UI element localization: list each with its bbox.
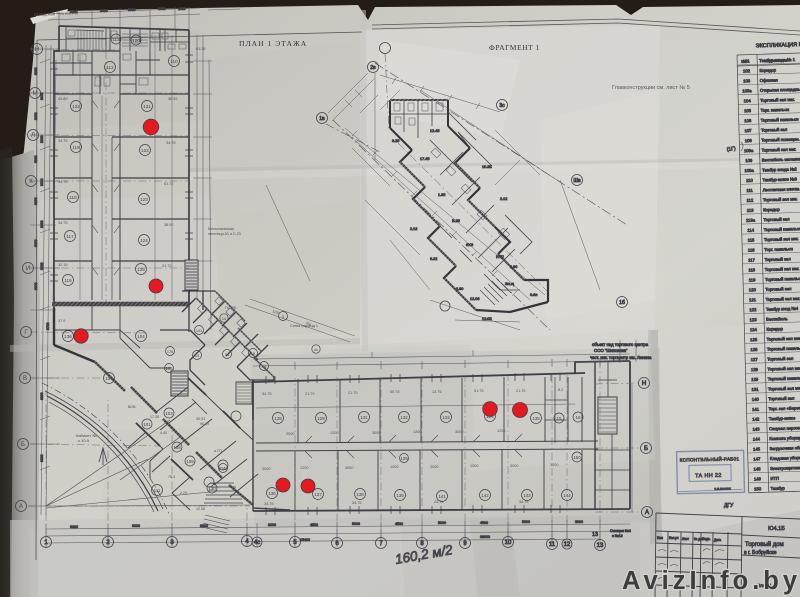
svg-text:18: 18 bbox=[251, 352, 255, 356]
svg-text:6000: 6000 bbox=[40, 392, 44, 400]
svg-text:34.75: 34.75 bbox=[58, 180, 68, 184]
svg-text:131: 131 bbox=[751, 387, 759, 392]
svg-text:ПС77Б: ПС77Б bbox=[225, 306, 237, 310]
svg-text:129: 129 bbox=[400, 456, 408, 461]
svg-text:Б: Б bbox=[21, 442, 25, 448]
svg-text:Ю4.1Б: Ю4.1Б bbox=[768, 526, 785, 532]
svg-text:103: 103 bbox=[743, 78, 751, 83]
svg-text:123: 123 bbox=[750, 317, 758, 322]
svg-text:6000: 6000 bbox=[34, 155, 38, 163]
svg-text:ИТП: ИТП bbox=[770, 476, 779, 481]
svg-text:6000: 6000 bbox=[34, 282, 38, 290]
svg-text:5000: 5000 bbox=[438, 521, 446, 525]
svg-text:13.75: 13.75 bbox=[432, 390, 442, 394]
svg-text:106: 106 bbox=[744, 118, 752, 123]
svg-text:ТА НН 22: ТА НН 22 bbox=[695, 473, 722, 480]
svg-text:147: 147 bbox=[753, 456, 761, 461]
svg-text:ООО "Шиповник": ООО "Шиповник" bbox=[594, 348, 628, 353]
svg-text:116: 116 bbox=[748, 247, 756, 252]
svg-text:21.79: 21.79 bbox=[305, 392, 315, 396]
svg-text:107: 107 bbox=[745, 128, 753, 133]
svg-text:38.52: 38.52 bbox=[168, 97, 178, 101]
svg-text:1400: 1400 bbox=[178, 7, 186, 11]
svg-text:К: К bbox=[29, 179, 33, 185]
svg-text:Дата: Дата bbox=[714, 538, 721, 542]
svg-text:34.75: 34.75 bbox=[352, 501, 362, 505]
svg-text:90.19: 90.19 bbox=[200, 422, 209, 426]
svg-text:3000: 3000 bbox=[40, 220, 44, 228]
svg-text:Торговый зал маг.: Торговый зал маг. bbox=[767, 366, 800, 372]
svg-text:1б: 1б bbox=[619, 300, 625, 306]
svg-text:Главконструкции см. лист № 5: Главконструкции см. лист № 5 bbox=[612, 85, 690, 91]
svg-text:6.22: 6.22 bbox=[430, 257, 437, 261]
svg-text:109: 109 bbox=[745, 158, 753, 163]
svg-text:Н: Н bbox=[35, 47, 39, 53]
svg-text:104: 104 bbox=[137, 334, 145, 339]
svg-text:Коридор: Коридор bbox=[759, 67, 776, 73]
svg-text:14: 14 bbox=[225, 353, 229, 357]
svg-text:Комната уборщицы: Комната уборщицы bbox=[769, 435, 800, 441]
svg-text:112: 112 bbox=[106, 65, 114, 70]
svg-text:AvizInfo.by: AvizInfo.by bbox=[622, 567, 800, 595]
svg-text:141: 141 bbox=[438, 494, 446, 499]
svg-text:103: 103 bbox=[165, 411, 173, 416]
svg-text:125: 125 bbox=[750, 337, 758, 342]
svg-text:3000: 3000 bbox=[430, 465, 438, 469]
svg-text:123: 123 bbox=[140, 197, 148, 202]
svg-text:ВОВ: ВОВ bbox=[128, 405, 136, 409]
svg-text:Тамбур вход №4: Тамбур вход №4 bbox=[766, 306, 799, 312]
svg-text:122: 122 bbox=[749, 307, 757, 312]
svg-text:8600: 8600 bbox=[200, 524, 208, 528]
svg-text:а ГП: а ГП bbox=[214, 449, 222, 453]
svg-text:116: 116 bbox=[64, 278, 72, 283]
svg-text:1200: 1200 bbox=[300, 466, 308, 470]
svg-text:137: 137 bbox=[314, 492, 322, 497]
svg-text:ФРАГМЕНТ 1: ФРАГМЕНТ 1 bbox=[489, 43, 540, 52]
svg-text:34.75: 34.75 bbox=[519, 500, 529, 504]
svg-text:121: 121 bbox=[143, 104, 151, 109]
svg-text:129: 129 bbox=[317, 416, 325, 421]
svg-text:п.и.костюк: п.и.костюк bbox=[714, 487, 731, 491]
svg-text:Подп.: Подп. bbox=[702, 537, 711, 541]
svg-text:124: 124 bbox=[140, 238, 148, 243]
svg-text:113: 113 bbox=[747, 208, 755, 213]
svg-text:110: 110 bbox=[746, 178, 754, 183]
svg-text:с 10-9: с 10-9 bbox=[78, 438, 90, 443]
svg-text:138: 138 bbox=[356, 492, 364, 497]
svg-text:Н: Н bbox=[642, 381, 646, 387]
svg-text:128: 128 bbox=[274, 416, 282, 421]
svg-text:128: 128 bbox=[751, 367, 759, 372]
svg-text:14: 14 bbox=[195, 354, 199, 358]
svg-text:119: 119 bbox=[72, 145, 80, 150]
svg-text:9730: 9730 bbox=[46, 322, 50, 330]
svg-text:6300: 6300 bbox=[70, 525, 78, 529]
svg-text:111: 111 bbox=[154, 488, 161, 493]
svg-text:103а: 103а bbox=[742, 88, 752, 93]
svg-text:4с: 4с bbox=[314, 348, 318, 352]
svg-text:6000: 6000 bbox=[34, 112, 38, 120]
svg-text:4500: 4500 bbox=[480, 521, 488, 525]
svg-text:4.40: 4.40 bbox=[160, 431, 167, 435]
svg-text:Офисная: Офисная bbox=[760, 77, 778, 83]
svg-text:143: 143 bbox=[523, 493, 531, 498]
svg-text:12: 12 bbox=[564, 542, 571, 548]
svg-text:4500: 4500 bbox=[310, 523, 318, 527]
svg-text:Коридор: Коридор bbox=[766, 326, 783, 332]
svg-text:3000: 3000 bbox=[40, 92, 44, 100]
svg-text:Торговый зал: Торговый зал bbox=[761, 127, 788, 133]
svg-text:34.75: 34.75 bbox=[262, 392, 272, 396]
svg-text:135: 135 bbox=[532, 416, 540, 421]
svg-text:144: 144 bbox=[563, 493, 571, 498]
svg-text:Торговый дом: Торговый дом bbox=[745, 541, 784, 548]
svg-text:8.2: 8.2 bbox=[558, 388, 563, 392]
svg-text:3.25: 3.25 bbox=[392, 139, 399, 143]
svg-text:Торговый зал: Торговый зал bbox=[768, 396, 795, 402]
svg-text:126: 126 bbox=[750, 347, 758, 352]
svg-text:50.75: 50.75 bbox=[390, 390, 400, 394]
svg-text:1.95: 1.95 bbox=[438, 193, 445, 197]
svg-text:37.9: 37.9 bbox=[58, 319, 65, 323]
svg-text:24.75: 24.75 bbox=[434, 500, 444, 504]
svg-text:21.79: 21.79 bbox=[348, 391, 358, 395]
svg-text:51.72: 51.72 bbox=[162, 264, 172, 268]
svg-text:113: 113 bbox=[112, 37, 120, 42]
svg-text:Торговый зал: Торговый зал bbox=[763, 216, 790, 222]
svg-text:Торг. зал «Березка»: Торг. зал «Березка» bbox=[768, 405, 800, 411]
svg-text:21.75: 21.75 bbox=[516, 389, 526, 393]
svg-text:Торговый павильон: Торговый павильон bbox=[765, 276, 800, 282]
svg-text:(1Г): (1Г) bbox=[726, 146, 736, 153]
svg-text:Электрощитовая: Электрощитовая bbox=[770, 465, 800, 471]
svg-text:38.92: 38.92 bbox=[164, 223, 174, 227]
svg-text:4500: 4500 bbox=[395, 522, 403, 526]
svg-text:М: М bbox=[33, 91, 38, 97]
svg-text:132: 132 bbox=[400, 415, 408, 420]
svg-text:45.80: 45.80 bbox=[58, 97, 68, 101]
svg-text:Торговый павильон: Торговый павильон bbox=[768, 375, 800, 381]
svg-text:2в: 2в bbox=[370, 65, 376, 71]
svg-text:112: 112 bbox=[747, 198, 755, 203]
svg-text:3000: 3000 bbox=[510, 464, 518, 468]
svg-text:Торговый павильон: Торговый павильон bbox=[767, 345, 800, 351]
svg-text:101: 101 bbox=[743, 58, 751, 63]
svg-text:122: 122 bbox=[141, 148, 149, 153]
svg-text:Тамбур: Тамбур bbox=[771, 485, 786, 490]
svg-text:3000: 3000 bbox=[262, 467, 270, 471]
svg-text:129: 129 bbox=[751, 377, 759, 382]
svg-text:6У.9: 6У.9 bbox=[466, 243, 473, 247]
svg-text:1200: 1200 bbox=[470, 464, 478, 468]
svg-text:Смещен №3: Смещен №3 bbox=[610, 529, 631, 533]
svg-text:101: 101 bbox=[143, 422, 151, 427]
svg-text:140: 140 bbox=[752, 397, 760, 402]
svg-text:6000: 6000 bbox=[34, 239, 38, 247]
svg-text:в г. Бобруйске: в г. Бобруйске bbox=[744, 549, 777, 556]
svg-text:3000: 3000 bbox=[40, 178, 44, 186]
svg-text:61.28: 61.28 bbox=[196, 47, 206, 51]
svg-text:Торг. павильон: Торг. павильон bbox=[764, 246, 793, 252]
svg-text:16: 16 bbox=[576, 415, 581, 420]
svg-text:109а: 109а bbox=[744, 168, 754, 173]
svg-text:1200: 1200 bbox=[390, 465, 398, 469]
svg-text:12.0Б: 12.0Б bbox=[482, 317, 492, 321]
svg-text:15400: 15400 bbox=[300, 538, 310, 542]
svg-text:108а: 108а bbox=[744, 148, 754, 153]
svg-text:Торговый зал маг.: Торговый зал маг. bbox=[765, 266, 800, 272]
svg-text:6000: 6000 bbox=[40, 454, 44, 462]
svg-text:119: 119 bbox=[749, 277, 757, 282]
svg-text:114: 114 bbox=[747, 228, 755, 233]
svg-text:122: 122 bbox=[72, 104, 80, 109]
svg-text:149: 149 bbox=[754, 476, 762, 481]
svg-text:3с: 3с bbox=[499, 103, 505, 109]
svg-text:131: 131 bbox=[360, 415, 368, 420]
svg-text:120: 120 bbox=[132, 38, 140, 43]
svg-text:144: 144 bbox=[753, 436, 761, 441]
svg-text:6000: 6000 bbox=[132, 524, 140, 528]
svg-text:1в: 1в bbox=[319, 116, 325, 122]
svg-text:34.75: 34.75 bbox=[58, 139, 68, 143]
svg-text:А: А bbox=[19, 504, 23, 510]
svg-text:3000: 3000 bbox=[128, 8, 136, 12]
svg-text:30.51: 30.51 bbox=[196, 417, 206, 421]
svg-text:120: 120 bbox=[749, 287, 757, 292]
svg-text:Торговый зал маг.: Торговый зал маг. bbox=[768, 385, 800, 391]
svg-text:124: 124 bbox=[750, 327, 758, 332]
svg-text:139: 139 bbox=[396, 493, 404, 498]
svg-text:3000: 3000 bbox=[100, 9, 108, 13]
svg-text:136: 136 bbox=[64, 334, 72, 339]
svg-text:3000: 3000 bbox=[40, 262, 44, 270]
svg-text:11: 11 bbox=[549, 542, 556, 548]
svg-text:Торг. павильон: Торг. павильон bbox=[760, 107, 789, 113]
svg-text:78.3: 78.3 bbox=[168, 475, 175, 479]
svg-text:3000: 3000 bbox=[268, 523, 276, 527]
svg-text:135: 135 bbox=[105, 376, 113, 381]
svg-text:104: 104 bbox=[744, 98, 752, 103]
svg-text:1200: 1200 bbox=[550, 463, 558, 467]
svg-text:142: 142 bbox=[752, 417, 760, 422]
svg-text:127: 127 bbox=[751, 357, 759, 362]
svg-text:12.08: 12.08 bbox=[196, 507, 205, 511]
svg-text:2000: 2000 bbox=[286, 432, 294, 436]
svg-text:13: 13 bbox=[592, 532, 598, 538]
svg-text:Вестибюль: Вестибюль bbox=[766, 316, 789, 322]
svg-text:0.6л: 0.6л bbox=[530, 293, 538, 297]
svg-text:Изм: Изм bbox=[657, 536, 663, 540]
svg-text:32.15: 32.15 bbox=[58, 263, 68, 267]
svg-text:12.45: 12.45 bbox=[430, 129, 440, 133]
svg-text:3000: 3000 bbox=[372, 431, 380, 435]
svg-text:В.25: В.25 bbox=[452, 219, 460, 223]
svg-text:Загрузочная обл.: Загрузочная обл. bbox=[770, 445, 800, 451]
svg-text:102: 102 bbox=[743, 68, 751, 73]
svg-text:5000: 5000 bbox=[522, 520, 530, 524]
svg-text:118: 118 bbox=[748, 267, 756, 272]
svg-text:175: 175 bbox=[167, 350, 173, 354]
svg-text:117: 117 bbox=[748, 257, 756, 262]
svg-text:6000: 6000 bbox=[34, 197, 38, 205]
svg-text:111: 111 bbox=[746, 188, 753, 193]
svg-text:13: 13 bbox=[597, 543, 604, 549]
svg-text:с №13: с №13 bbox=[612, 534, 623, 538]
svg-text:150: 150 bbox=[573, 455, 581, 460]
svg-text:Торговый зал: Торговый зал bbox=[764, 256, 791, 262]
svg-text:Эл.щ: Эл.щ bbox=[505, 282, 515, 286]
svg-text:5000: 5000 bbox=[352, 522, 360, 526]
svg-text:14: 14 bbox=[222, 317, 226, 321]
svg-text:Металлическая: Металлическая bbox=[208, 227, 234, 231]
svg-text:15: 15 bbox=[557, 416, 562, 421]
svg-text:лестница А1 и С-23: лестница А1 и С-23 bbox=[208, 232, 241, 236]
svg-text:136: 136 bbox=[268, 491, 276, 496]
svg-text:1200: 1200 bbox=[497, 429, 505, 433]
svg-text:ДГУ: ДГУ bbox=[724, 503, 734, 509]
svg-text:121: 121 bbox=[749, 297, 757, 302]
svg-text:И: И bbox=[26, 266, 30, 272]
svg-text:150: 150 bbox=[754, 486, 762, 491]
svg-text:Торговый зал: Торговый зал bbox=[765, 286, 792, 292]
svg-text:5280: 5280 bbox=[70, 10, 78, 14]
svg-text:141: 141 bbox=[752, 407, 760, 412]
svg-text:17.45: 17.45 bbox=[420, 157, 430, 161]
svg-text:Шв: Шв bbox=[573, 178, 581, 184]
svg-text:12.06: 12.06 bbox=[470, 297, 480, 301]
svg-text:34.75: 34.75 bbox=[264, 502, 274, 506]
svg-text:38600: 38600 bbox=[480, 535, 490, 539]
svg-text:ПЛАН 1 ЭТАЖА: ПЛАН 1 ЭТАЖА bbox=[239, 39, 307, 48]
svg-text:143: 143 bbox=[752, 427, 760, 432]
svg-text:2.20: 2.20 bbox=[180, 491, 187, 495]
svg-text:108: 108 bbox=[745, 138, 753, 143]
svg-text:Кол.уч: Кол.уч bbox=[669, 536, 679, 540]
svg-text:17.35: 17.35 bbox=[150, 415, 159, 419]
svg-text:2600: 2600 bbox=[158, 7, 166, 11]
svg-text:34.75: 34.75 bbox=[58, 221, 68, 225]
svg-text:В: В bbox=[23, 376, 27, 382]
svg-text:115: 115 bbox=[748, 237, 756, 242]
svg-text:2.12: 2.12 bbox=[410, 227, 417, 231]
svg-text:4с: 4с bbox=[254, 540, 260, 546]
svg-text:Л: Л bbox=[31, 133, 35, 139]
svg-text:част. маг. торгцентр им. Ленин: част. маг. торгцентр им. Ленина bbox=[590, 355, 652, 360]
svg-text:105: 105 bbox=[165, 366, 173, 371]
svg-text:105: 105 bbox=[744, 108, 752, 113]
svg-text:113а: 113а bbox=[746, 217, 756, 222]
svg-text:Торговый зал: Торговый зал bbox=[767, 356, 794, 362]
svg-text:3000: 3000 bbox=[345, 466, 353, 470]
svg-text:1200: 1200 bbox=[413, 430, 421, 434]
svg-text:10.3Б: 10.3Б bbox=[482, 165, 492, 169]
svg-text:Кладовая уборщ.: Кладовая уборщ. bbox=[770, 455, 800, 461]
svg-text:109: 109 bbox=[186, 459, 194, 464]
svg-text:Б: Б bbox=[644, 446, 648, 452]
svg-text:110: 110 bbox=[170, 59, 178, 64]
svg-text:51.75: 51.75 bbox=[474, 389, 484, 393]
svg-text:2.12: 2.12 bbox=[500, 197, 507, 201]
svg-text:108: 108 bbox=[173, 445, 181, 450]
svg-text:142: 142 bbox=[481, 493, 489, 498]
svg-text:6000: 6000 bbox=[34, 67, 38, 75]
svg-text:125: 125 bbox=[137, 267, 145, 272]
svg-text:3000: 3000 bbox=[455, 430, 463, 434]
svg-text:133: 133 bbox=[442, 415, 450, 420]
svg-text:ИТП: ИТП bbox=[496, 255, 504, 259]
svg-text:34.75: 34.75 bbox=[166, 141, 176, 145]
svg-text:Лист: Лист bbox=[682, 537, 689, 541]
svg-text:141: 141 bbox=[196, 329, 202, 333]
svg-text:Тамбур-шлюз: Тамбур-шлюз bbox=[769, 415, 796, 421]
svg-text:117: 117 bbox=[66, 234, 74, 239]
svg-text:3000: 3000 bbox=[40, 135, 44, 143]
svg-text:118: 118 bbox=[69, 195, 77, 200]
svg-text:145: 145 bbox=[753, 446, 761, 451]
svg-text:объект над торгового центра: объект над торгового центра bbox=[592, 342, 649, 347]
svg-text:2.90: 2.90 bbox=[456, 287, 463, 291]
svg-text:51.72: 51.72 bbox=[164, 182, 174, 186]
svg-text:Санузел персонала: Санузел персонала bbox=[769, 425, 800, 431]
svg-text:3000: 3000 bbox=[575, 520, 583, 524]
svg-text:Коридор: Коридор bbox=[763, 207, 780, 213]
svg-text:А: А bbox=[645, 510, 649, 516]
svg-text:148: 148 bbox=[754, 466, 762, 471]
svg-text:Торговый зал маг.: Торговый зал маг. bbox=[767, 336, 800, 342]
svg-text:2.90: 2.90 bbox=[510, 265, 517, 269]
svg-text:10: 10 bbox=[505, 540, 512, 546]
